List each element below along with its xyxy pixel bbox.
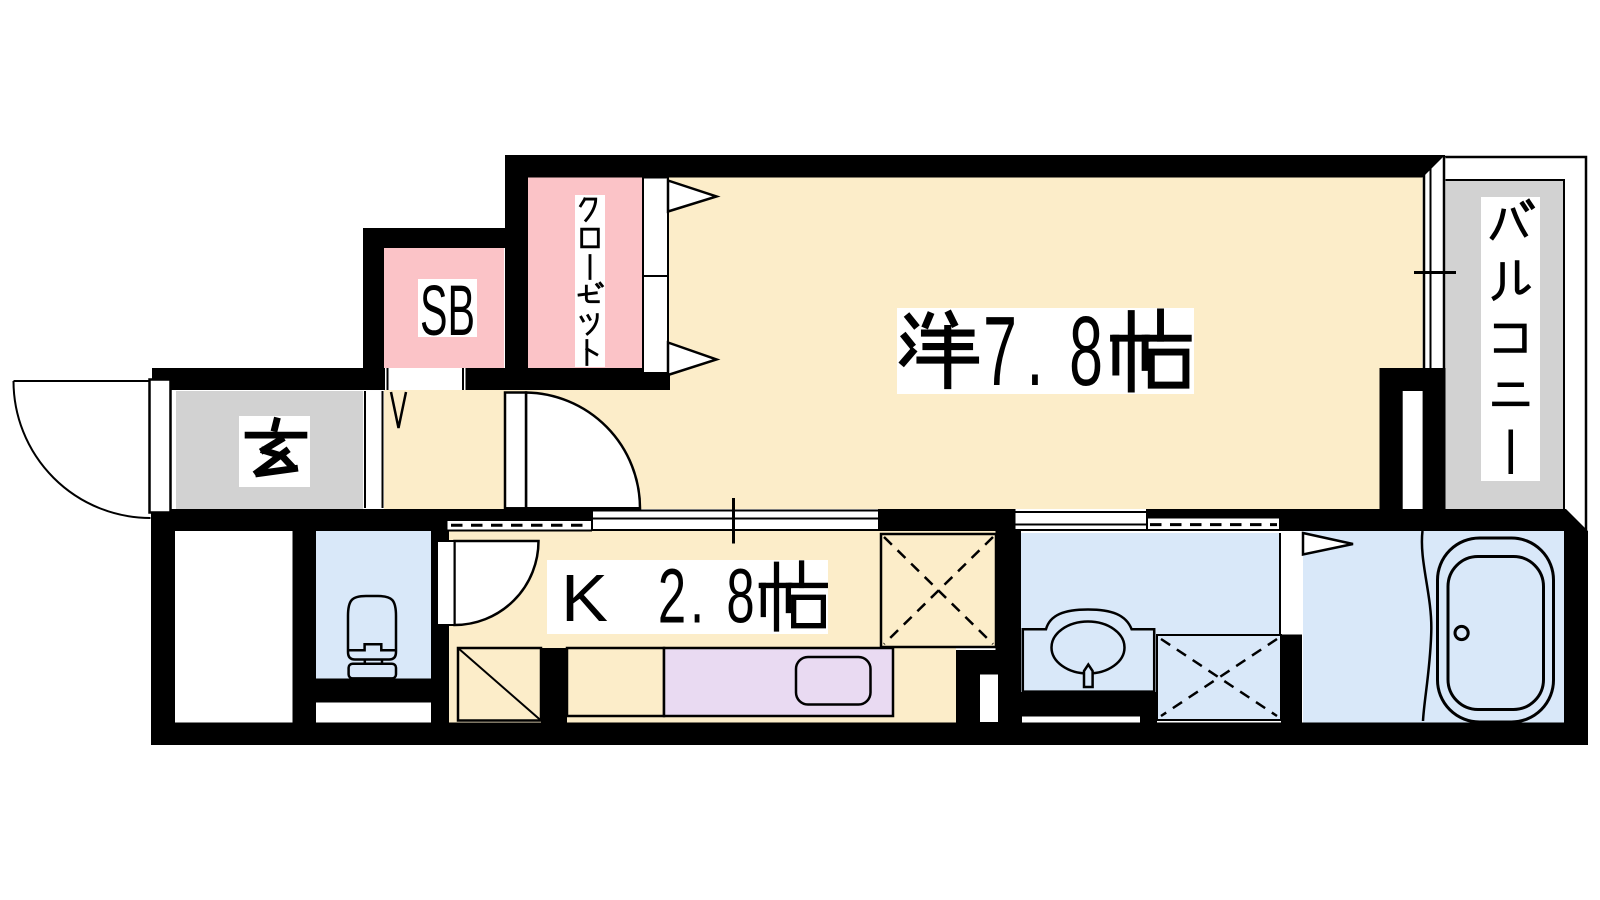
svg-text:SB: SB xyxy=(420,272,475,351)
svg-text:K: K xyxy=(561,561,608,636)
svg-text:.: . xyxy=(690,553,704,639)
svg-text:2: 2 xyxy=(658,553,686,639)
svg-text:.: . xyxy=(1027,297,1044,406)
svg-text:8: 8 xyxy=(1069,297,1103,406)
svg-text:8: 8 xyxy=(726,553,754,639)
svg-text:7: 7 xyxy=(983,297,1017,406)
